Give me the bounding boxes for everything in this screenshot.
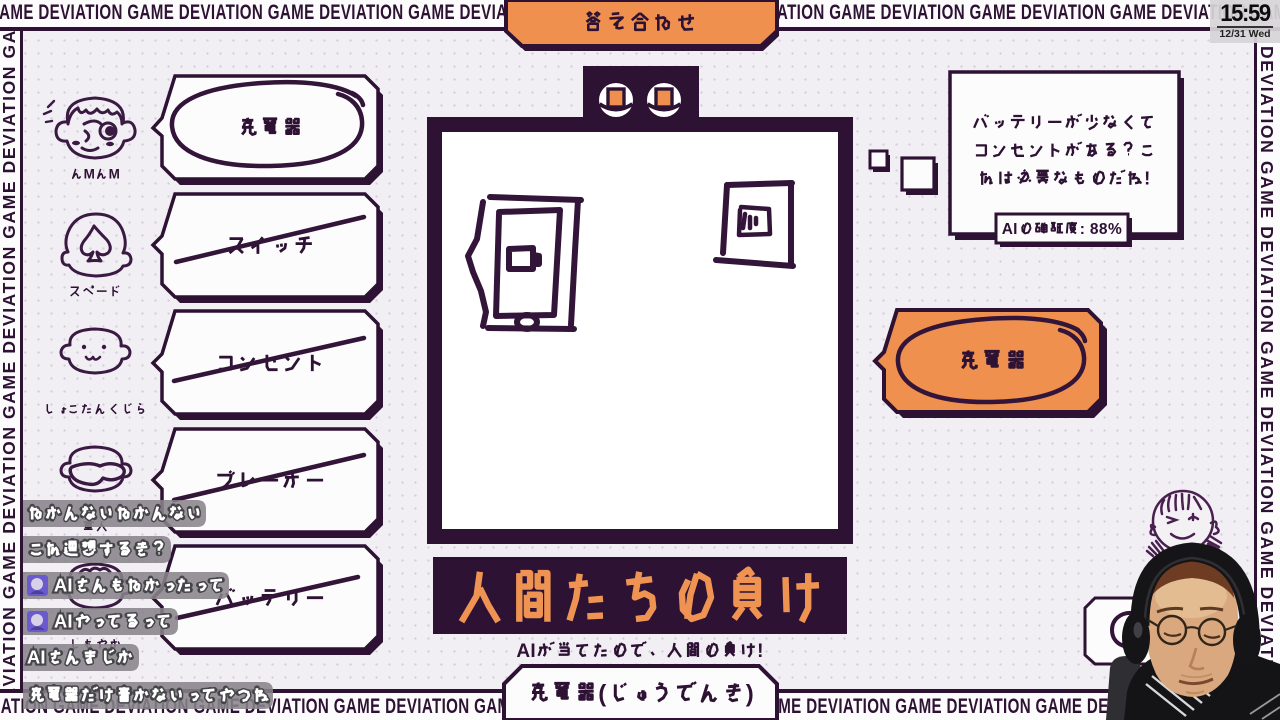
svg-text:A: A (1002, 221, 1013, 238)
svg-text:I: I (40, 647, 45, 668)
svg-text:I: I (530, 641, 535, 662)
svg-text:I: I (67, 575, 72, 596)
svg-text:(: ( (598, 680, 606, 707)
svg-text:M: M (109, 167, 120, 182)
svg-text:8: 8 (1090, 221, 1099, 238)
svg-text:I: I (67, 611, 72, 632)
svg-text:!: ! (757, 641, 763, 662)
svg-text:I: I (1013, 221, 1017, 238)
svg-text::: : (1080, 221, 1085, 238)
svg-text:8: 8 (1099, 221, 1108, 238)
svg-text:A: A (27, 647, 40, 668)
svg-text:): ) (746, 680, 754, 707)
svg-text:A: A (54, 575, 67, 596)
svg-text:M: M (84, 167, 95, 182)
svg-text:%: % (1108, 221, 1122, 238)
svg-text:A: A (54, 611, 67, 632)
svg-text:A: A (516, 641, 530, 662)
svg-text:!: ! (1144, 168, 1150, 189)
